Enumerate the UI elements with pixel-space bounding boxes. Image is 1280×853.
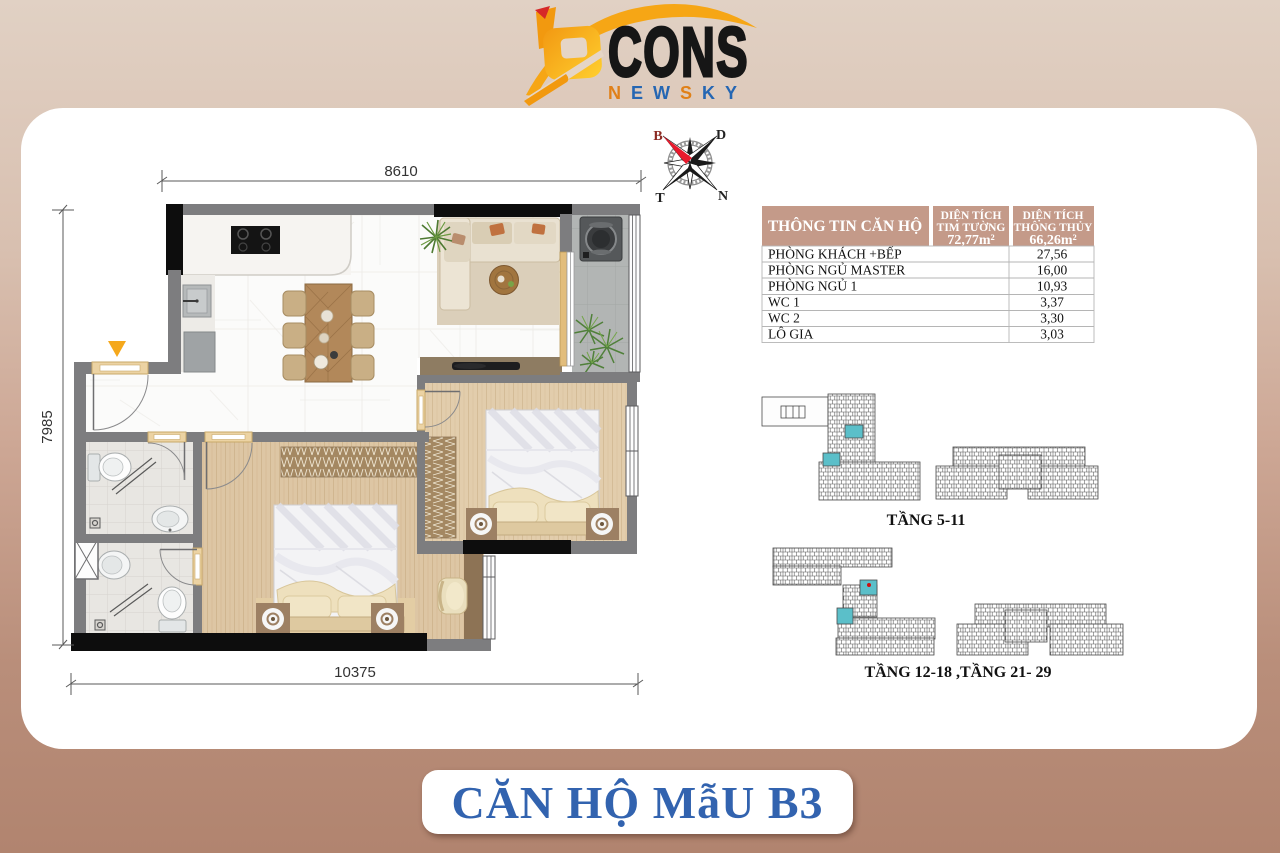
svg-text:27,56: 27,56 [1037,247,1068,262]
svg-text:D: D [716,128,726,143]
svg-text:THÔNG TIN CĂN HỘ: THÔNG TIN CĂN HỘ [768,218,922,235]
svg-text:16,00: 16,00 [1037,263,1068,278]
svg-text:3,37: 3,37 [1040,295,1064,310]
svg-text:T: T [655,191,665,206]
svg-text:N: N [718,189,728,204]
svg-text:7985: 7985 [39,410,56,443]
svg-text:3,03: 3,03 [1040,327,1064,342]
svg-text:DIỆN TÍCH: DIỆN TÍCH [941,208,1002,222]
svg-text:10,93: 10,93 [1037,279,1068,294]
svg-text:NEWSKY: NEWSKY [608,83,747,103]
svg-text:DIỆN TÍCH: DIỆN TÍCH [1023,208,1084,222]
svg-text:8610: 8610 [384,163,417,180]
svg-text:3,30: 3,30 [1040,311,1064,326]
svg-text:WC 1: WC 1 [768,295,800,310]
svg-text:TẦNG 12-18 ,TẦNG 21- 29: TẦNG 12-18 ,TẦNG 21- 29 [864,662,1051,681]
svg-text:B: B [653,129,662,144]
svg-text:TIM TƯỜNG: TIM TƯỜNG [937,220,1006,234]
svg-text:THÔNG THỦY: THÔNG THỦY [1014,220,1093,234]
svg-text:TẦNG 5-11: TẦNG 5-11 [887,510,966,529]
svg-text:LÔ GIA: LÔ GIA [768,327,814,342]
svg-text:PHÒNG KHÁCH +BẾP: PHÒNG KHÁCH +BẾP [768,247,902,262]
svg-text:PHÒNG NGỦ MASTER: PHÒNG NGỦ MASTER [768,263,905,278]
svg-text:10375: 10375 [334,664,376,681]
svg-text:WC 2: WC 2 [768,311,800,326]
svg-text:CONS: CONS [608,13,749,92]
svg-text:PHÒNG NGỦ 1: PHÒNG NGỦ 1 [768,279,857,294]
